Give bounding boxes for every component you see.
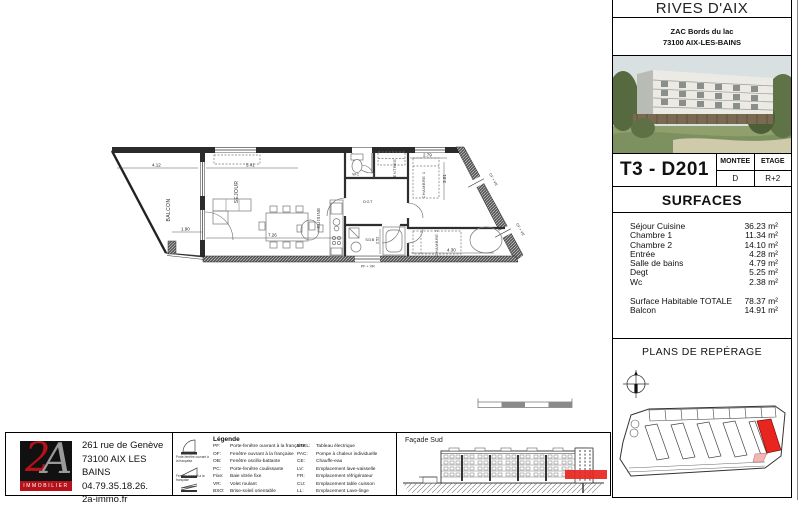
legend-desc: Chauffe-eau — [316, 459, 342, 464]
legend-abbr: VR: — [213, 482, 221, 487]
sliding-window-icon — [181, 484, 197, 492]
legend-desc: Baie vitrée fixe — [230, 474, 261, 479]
legend-desc: Porte-fenêtre ouvrant à la française — [230, 444, 305, 449]
surfaces-list: Séjour Cuisine36.23 m² Chambre 111.34 m²… — [613, 213, 791, 339]
agency-address-line1: 261 rue de Genève — [82, 439, 172, 453]
surface-total-row: Balcon14.91 m² — [630, 306, 778, 315]
site-plan — [615, 402, 789, 484]
agency-logo: 2 A IMMOBILIER — [20, 441, 72, 491]
room-cuisine: CUISINE — [316, 207, 321, 228]
legend-abbr: Fixe: — [213, 474, 223, 479]
etage-value: R+2 — [755, 171, 792, 187]
facade-elevation — [397, 433, 610, 495]
montee-label: MONTEE — [717, 154, 755, 170]
legend-abbr: ETEL: — [297, 444, 310, 449]
legend-abbr: CE: — [297, 459, 305, 464]
window-label-3: PF + VR — [361, 265, 375, 269]
legend-desc: Brise-soleil orientable — [230, 489, 276, 494]
legend-desc: Fenêtre oscillo-battante — [230, 459, 280, 464]
legend-desc: Volet roulant — [230, 482, 257, 487]
dim-sejour-top: 5.41 — [246, 163, 255, 168]
room-sdb: SDB — [365, 237, 374, 242]
window-label-2: CF + VR — [515, 223, 525, 237]
legend-symbols — [177, 438, 209, 494]
project-address: ZAC Bords du lac 73100 AIX-LES-BAINS — [613, 18, 791, 56]
legend-box: Légende Porte-fenêtre ouvrant à la franç… — [172, 432, 397, 496]
surface-label: Wc — [630, 278, 642, 287]
dim-ch1-width: 2.79 — [423, 153, 432, 158]
building-photo — [613, 56, 791, 153]
facade-highlighted-unit — [565, 470, 607, 479]
room-entree: ENTREE — [392, 159, 397, 178]
unit-row: T3 - D201 MONTEE ETAGE D R+2 — [613, 153, 791, 187]
legend-desc: Fenêtre ouvrant à la française — [230, 452, 294, 457]
project-address-line2: 73100 AIX-LES-BAINS — [613, 37, 791, 48]
north-compass-icon — [621, 368, 651, 400]
room-wc: WC — [352, 172, 359, 177]
legend-abbr: CU: — [297, 482, 305, 487]
legend-abbr: PF: — [213, 444, 220, 449]
agency-phone: 04.79.35.18.26. — [82, 480, 172, 494]
surface-value: 2.38 m² — [749, 278, 778, 287]
legend-icon2-caption: Fenêtre ouvrant à la française — [176, 475, 210, 482]
etage-label: ETAGE — [755, 154, 792, 170]
dim-ch1-height: 3.01 — [442, 174, 447, 183]
legend-desc: Tableau électrique — [316, 444, 355, 449]
legend-desc: Emplacement Lave-linge — [316, 489, 369, 494]
montee-value: D — [717, 171, 755, 187]
logo-immobilier: IMMOBILIER — [20, 481, 72, 491]
legend-abbr: FR: — [297, 474, 305, 479]
dim-balcon-width: 1.90 — [181, 227, 190, 232]
project-title-box: RIVES D'AIX — [613, 0, 791, 18]
reperage-title: PLANS DE REPÉRAGE — [613, 339, 791, 358]
agency-box: 2 A IMMOBILIER 261 rue de Genève 73100 A… — [5, 432, 173, 496]
surface-row: Wc2.38 m² — [630, 278, 778, 287]
logo-A: A — [42, 441, 72, 483]
project-address-line1: ZAC Bords du lac — [613, 26, 791, 37]
dim-balcon-length: 4.12 — [152, 163, 161, 168]
legend-icon1-caption: Porte-fenêtre ouvrant à la française — [176, 456, 210, 463]
legend-abbr: BSO: — [213, 489, 224, 494]
legend-abbr: LL: — [297, 489, 304, 494]
room-dgt: DGT — [363, 199, 373, 204]
room-chambre2: CHAMBRE 2 — [434, 229, 439, 256]
apartment-outline — [112, 147, 523, 262]
legend-desc: Emplacement table cuisson — [316, 482, 375, 487]
legend-abbr: PAC: — [297, 452, 308, 457]
facade-box: Façade Sud — [396, 432, 611, 496]
drawing-sheet: { "project": { "name": "RIVES D'AIX", "a… — [0, 0, 800, 500]
door-swing-icon — [181, 440, 197, 455]
surfaces-title: SURFACES — [613, 187, 791, 213]
legend-desc: Porte-fenêtre coulissante — [230, 467, 283, 472]
montee-etage-table: MONTEE ETAGE D R+2 — [717, 154, 791, 186]
legend-abbr: OB: — [213, 459, 221, 464]
title-block-panel: RIVES D'AIX ZAC Bords du lac 73100 AIX-L… — [612, 0, 792, 498]
room-sejour: SEJOUR — [234, 181, 240, 204]
legend-desc: Emplacement lave-vaisselle — [316, 467, 375, 472]
legend-abbr: LV: — [297, 467, 304, 472]
dim-ch2-width: 4.30 — [447, 248, 456, 253]
legend-desc: Pompe à chaleur individuelle — [316, 452, 377, 457]
agency-address-line2: 73100 AIX LES BAINS — [82, 453, 172, 480]
surface-total-label: Balcon — [630, 306, 656, 315]
legend-abbr: PC: — [213, 467, 221, 472]
dim-sdb: 2.52 — [376, 237, 380, 244]
room-chambre1: CHAMBRE 1 — [421, 171, 426, 198]
surface-total-value: 14.91 m² — [744, 306, 778, 315]
legend-title: Légende — [213, 436, 240, 443]
agency-address: 261 rue de Genève 73100 AIX LES BAINS 04… — [82, 439, 172, 507]
room-balcon: BALCON — [166, 199, 172, 222]
unit-reference: T3 - D201 — [613, 154, 717, 186]
project-title: RIVES D'AIX — [656, 0, 749, 17]
legend-abbr: OF: — [213, 452, 221, 457]
legend-desc: Emplacement réfrigérateur — [316, 474, 373, 479]
scale-bar — [478, 399, 572, 408]
window-label-1: CF + VR — [488, 173, 498, 187]
dim-sejour-width: 7.26 — [268, 233, 277, 238]
